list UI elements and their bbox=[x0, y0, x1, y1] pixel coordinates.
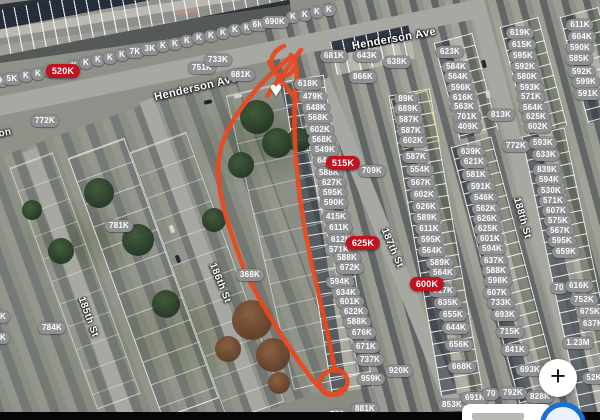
bottom-sheet[interactable] bbox=[462, 404, 552, 420]
price-pill[interactable]: 709K bbox=[358, 165, 386, 177]
plus-icon: + bbox=[550, 361, 566, 392]
price-pill[interactable]: 866K bbox=[349, 71, 377, 83]
price-pill[interactable]: 781K bbox=[105, 220, 133, 232]
price-pill[interactable]: 1.23M bbox=[562, 337, 593, 349]
price-pill[interactable]: 581K bbox=[462, 169, 490, 181]
price-pill[interactable]: 618K bbox=[294, 78, 322, 90]
price-pill[interactable]: 733K bbox=[487, 297, 515, 309]
price-pill[interactable]: 368K bbox=[236, 269, 264, 281]
price-pill[interactable]: 772K bbox=[502, 140, 530, 152]
price-pill[interactable]: 602K bbox=[410, 189, 438, 201]
price-pill[interactable]: 644K bbox=[442, 322, 470, 334]
price-pill[interactable]: 715K bbox=[496, 326, 524, 338]
price-pill[interactable]: 611K bbox=[325, 222, 352, 234]
price-pill[interactable]: 671K bbox=[352, 341, 380, 353]
price-pill[interactable]: 656K bbox=[445, 339, 473, 351]
price-pill[interactable]: 959K bbox=[357, 373, 385, 385]
price-pill[interactable]: 655K bbox=[439, 309, 467, 321]
price-pill[interactable]: 591K bbox=[574, 88, 600, 100]
price-pill[interactable]: 681K bbox=[320, 50, 348, 62]
price-pill[interactable]: 920K bbox=[385, 365, 413, 377]
price-pill[interactable]: 567K bbox=[407, 177, 435, 189]
price-pill[interactable]: 676K bbox=[348, 327, 376, 339]
price-pill[interactable]: 638K bbox=[383, 56, 411, 68]
price-pill[interactable]: 602K bbox=[524, 121, 552, 133]
price-pill[interactable]: 594K bbox=[478, 243, 506, 255]
price-pill[interactable]: 611K bbox=[566, 19, 593, 31]
price-pill[interactable]: 681K bbox=[227, 69, 255, 81]
price-pill[interactable]: 70 bbox=[482, 388, 499, 400]
price-pill[interactable]: 619K bbox=[506, 27, 534, 39]
price-pill-highlight[interactable]: 600K bbox=[410, 277, 444, 291]
price-pill[interactable]: 616K bbox=[565, 280, 593, 292]
price-pill[interactable]: 623K bbox=[436, 46, 464, 58]
price-pill[interactable]: 554K bbox=[406, 164, 434, 176]
price-pill[interactable]: 590K bbox=[320, 197, 348, 209]
price-pill[interactable]: 633K bbox=[532, 149, 560, 161]
price-pill[interactable]: 737K bbox=[356, 354, 384, 366]
price-pill[interactable]: 52K bbox=[582, 372, 600, 384]
satellite-map[interactable]: Henderson AveHenderson Aveon185th St186t… bbox=[0, 0, 600, 420]
price-pill[interactable]: 568K bbox=[304, 112, 332, 124]
zoom-in-button[interactable]: + bbox=[539, 359, 577, 397]
price-pill[interactable]: 672K bbox=[336, 262, 364, 274]
price-pill[interactable]: 602K bbox=[399, 135, 427, 147]
heart-icon[interactable]: ♥ bbox=[270, 80, 282, 101]
price-pill[interactable]: 637K bbox=[579, 318, 600, 330]
price-pill[interactable]: 659K bbox=[552, 246, 580, 258]
price-pill[interactable]: 784K bbox=[38, 322, 66, 334]
price-pill[interactable]: 733K bbox=[204, 54, 232, 66]
price-pill[interactable]: 598K bbox=[484, 275, 512, 287]
price-pill[interactable]: 585K bbox=[565, 53, 593, 65]
price-pill[interactable]: 635K bbox=[434, 297, 462, 309]
price-pill[interactable]: 564K bbox=[418, 245, 446, 257]
price-pill[interactable]: 752K bbox=[570, 294, 598, 306]
price-pill[interactable]: 693K bbox=[491, 309, 519, 321]
price-pill[interactable]: 643K bbox=[353, 50, 381, 62]
price-pill[interactable]: 409K bbox=[454, 121, 482, 133]
price-pill[interactable]: 587K bbox=[402, 151, 430, 163]
price-pill[interactable]: 593K bbox=[529, 137, 557, 149]
price-pill[interactable]: 668K bbox=[448, 361, 476, 373]
price-pill[interactable]: 841K bbox=[501, 344, 529, 356]
price-pill[interactable]: 599K bbox=[572, 76, 600, 88]
price-pill[interactable]: 621K bbox=[460, 156, 488, 168]
price-pill[interactable]: 772K bbox=[31, 115, 59, 127]
price-pill[interactable]: 690K bbox=[261, 16, 289, 28]
price-pill[interactable]: K bbox=[322, 4, 336, 16]
price-pill[interactable]: 813K bbox=[487, 109, 515, 121]
price-pill-highlight[interactable]: 625K bbox=[346, 236, 380, 250]
bottom-sheet-content bbox=[472, 413, 524, 420]
price-pill[interactable]: 792K bbox=[499, 387, 527, 399]
price-pill[interactable]: 675K bbox=[576, 306, 600, 318]
price-pill-highlight[interactable]: 515K bbox=[326, 156, 360, 170]
price-pill-highlight[interactable]: 520K bbox=[46, 64, 80, 78]
